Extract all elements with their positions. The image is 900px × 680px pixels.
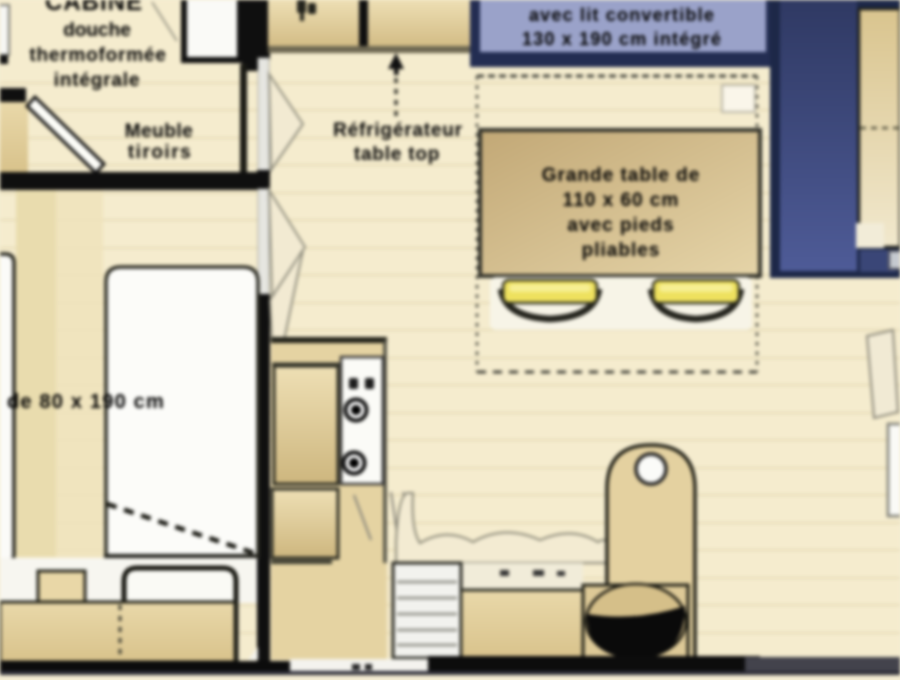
svg-text:table top: table top bbox=[354, 144, 440, 165]
svg-text:110 x 60 cm: 110 x 60 cm bbox=[563, 190, 680, 211]
svg-text:douche: douche bbox=[63, 20, 131, 41]
svg-text:thermoformée: thermoformée bbox=[29, 45, 166, 66]
svg-text:CABINE: CABINE bbox=[45, 0, 143, 16]
svg-text:130 x 190 cm intégré: 130 x 190 cm intégré bbox=[522, 29, 722, 49]
svg-text:intégrale: intégrale bbox=[54, 70, 140, 91]
svg-text:avec pieds: avec pieds bbox=[567, 215, 674, 236]
svg-text:Meuble: Meuble bbox=[125, 121, 193, 142]
svg-text:avec lit convertible: avec lit convertible bbox=[529, 5, 715, 25]
svg-text:Grande table de: Grande table de bbox=[542, 165, 701, 186]
svg-text:Réfrigérateur: Réfrigérateur bbox=[333, 120, 463, 141]
svg-text:ts de 80 x 190 cm: ts de 80 x 190 cm bbox=[0, 391, 165, 413]
svg-text:tiroirs: tiroirs bbox=[128, 142, 192, 163]
svg-text:pliables: pliables bbox=[582, 240, 661, 261]
